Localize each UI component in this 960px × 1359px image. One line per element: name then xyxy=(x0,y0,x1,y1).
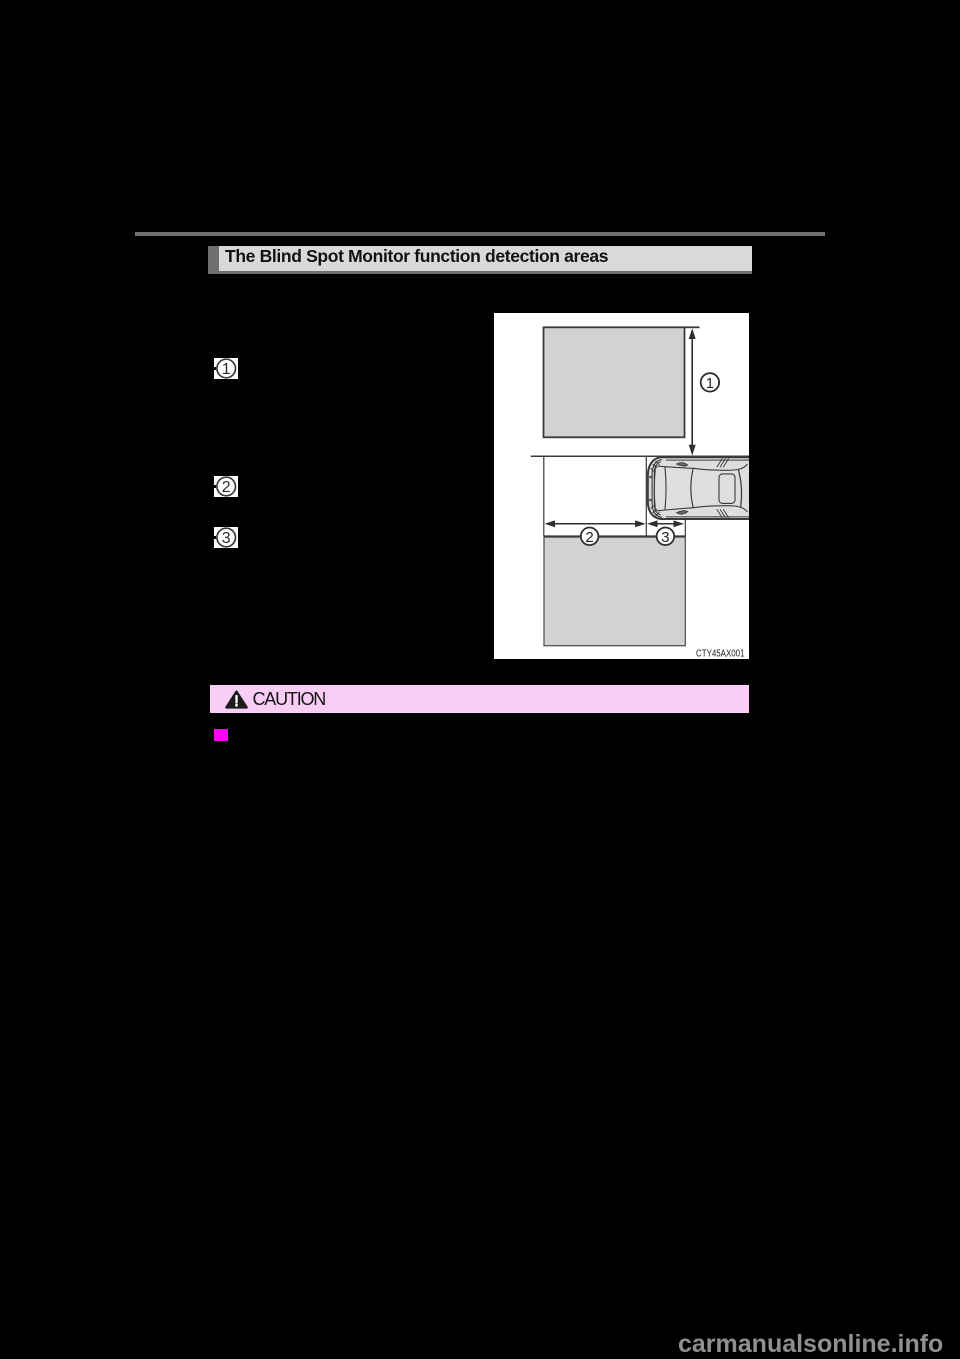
svg-text:2: 2 xyxy=(222,479,231,496)
svg-text:CTY45AX001: CTY45AX001 xyxy=(696,648,745,659)
svg-text:3: 3 xyxy=(661,529,669,546)
svg-text:2: 2 xyxy=(585,529,593,546)
svg-text:3: 3 xyxy=(222,530,231,547)
svg-text:1: 1 xyxy=(706,375,714,392)
svg-text:1: 1 xyxy=(222,361,231,378)
